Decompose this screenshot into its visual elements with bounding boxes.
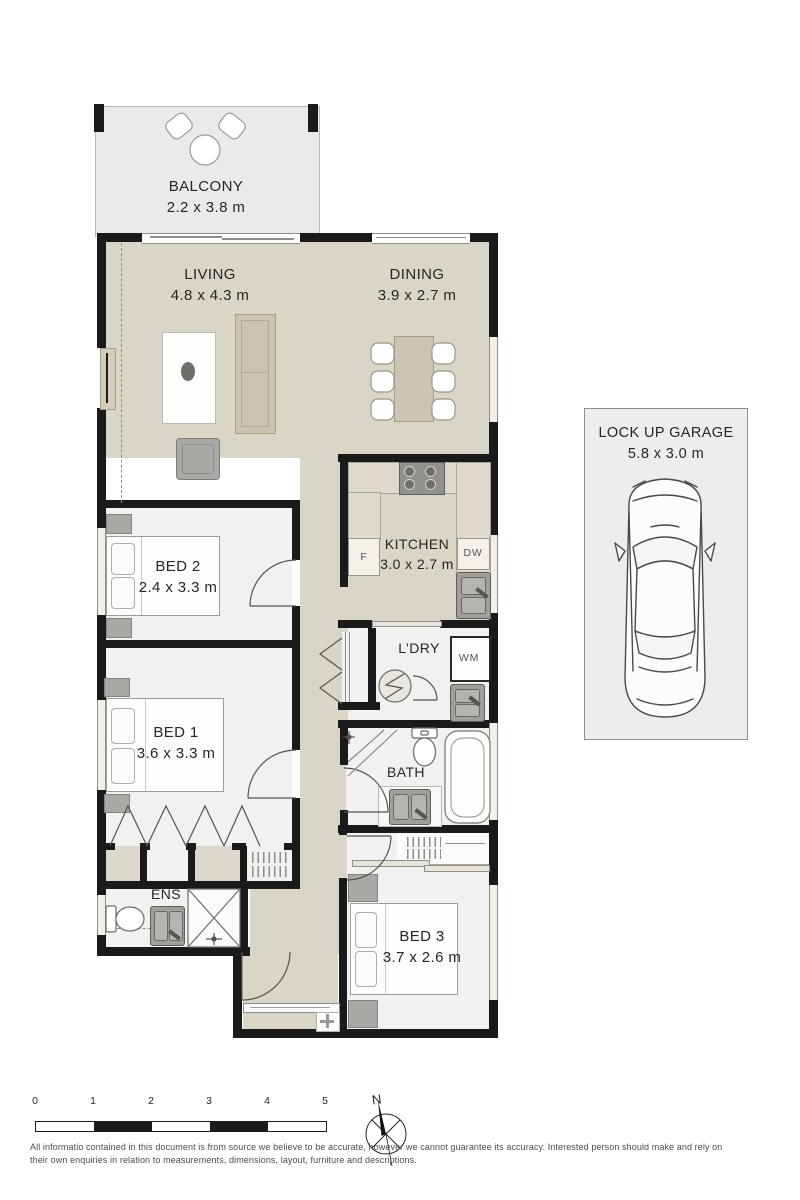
ensuite-name: ENS <box>151 886 181 902</box>
bed2-label: BED 2 2.4 x 3.3 m <box>139 556 218 598</box>
scale-tick: 0 <box>32 1095 38 1107</box>
hall-cupboard-doors <box>320 638 342 704</box>
scale-tick: 2 <box>148 1095 154 1107</box>
scale-tick: 4 <box>264 1095 270 1107</box>
garage-label: LOCK UP GARAGE 5.8 x 3.0 m <box>598 423 733 465</box>
compass-north-label: N <box>371 1091 382 1107</box>
balcony-outdoor-set <box>163 111 247 165</box>
bath-name: BATH <box>387 762 425 783</box>
bed3-name: BED 3 <box>383 926 462 947</box>
bed1-label: BED 1 3.6 x 3.3 m <box>137 722 216 764</box>
scale-tick: 1 <box>90 1095 96 1107</box>
bath-label: BATH <box>387 762 425 783</box>
living-name: LIVING <box>171 264 250 285</box>
bed2-name: BED 2 <box>139 556 218 577</box>
scale-tick: 5 <box>322 1095 328 1107</box>
laundry-name: L’DRY <box>398 638 439 659</box>
kitchen-label: KITCHEN 3.0 x 2.7 m <box>380 534 454 574</box>
garage-name: LOCK UP GARAGE <box>598 423 733 444</box>
bed3-dims: 3.7 x 2.6 m <box>383 947 462 968</box>
dining-dims: 3.9 x 2.7 m <box>378 285 457 306</box>
ensuite-label: ENS <box>151 886 181 902</box>
garage-dims: 5.8 x 3.0 m <box>598 444 733 465</box>
laundry-label: L’DRY <box>398 638 439 659</box>
scale-bar: 0 1 2 3 4 5 <box>35 1095 325 1135</box>
ensuite-toilet-icon <box>106 906 144 932</box>
bifold-robe-doors <box>110 806 260 846</box>
bath-shower-head-icon <box>343 731 355 744</box>
scale-segment-black <box>210 1122 268 1131</box>
bed1-dims: 3.6 x 3.3 m <box>137 743 216 764</box>
kitchen-name: KITCHEN <box>380 534 454 554</box>
bed3-label: BED 3 3.7 x 2.6 m <box>383 926 462 968</box>
door-arc-laundry-hws <box>413 676 437 700</box>
dining-name: DINING <box>378 264 457 285</box>
door-arc-bed2 <box>250 560 296 606</box>
door-arc-bed1 <box>248 750 296 798</box>
bathtub-icon <box>445 731 490 823</box>
hot-water-unit-icon <box>379 670 411 702</box>
door-arc-bath <box>344 768 388 812</box>
dining-label: DINING 3.9 x 2.7 m <box>378 264 457 306</box>
car-icon <box>607 471 723 725</box>
garage-area: LOCK UP GARAGE 5.8 x 3.0 m <box>584 408 748 740</box>
scale-bar-track <box>35 1121 327 1132</box>
disclaimer-text: All informatio contained in this documen… <box>30 1141 737 1166</box>
living-label: LIVING 4.8 x 4.3 m <box>171 264 250 306</box>
living-dims: 4.8 x 4.3 m <box>171 285 250 306</box>
door-arc-bed3 <box>347 836 391 880</box>
kitchen-dims: 3.0 x 2.7 m <box>380 554 454 574</box>
bath-toilet-icon <box>412 728 437 766</box>
scale-tick: 3 <box>206 1095 212 1107</box>
dining-chairs <box>371 343 455 420</box>
floorplan-page: BALCONY 2.2 x 3.8 m <box>0 0 800 1200</box>
scale-segment-black <box>94 1122 152 1131</box>
bed2-dims: 2.4 x 3.3 m <box>139 577 218 598</box>
bed1-name: BED 1 <box>137 722 216 743</box>
door-arc-entry <box>242 952 290 1000</box>
